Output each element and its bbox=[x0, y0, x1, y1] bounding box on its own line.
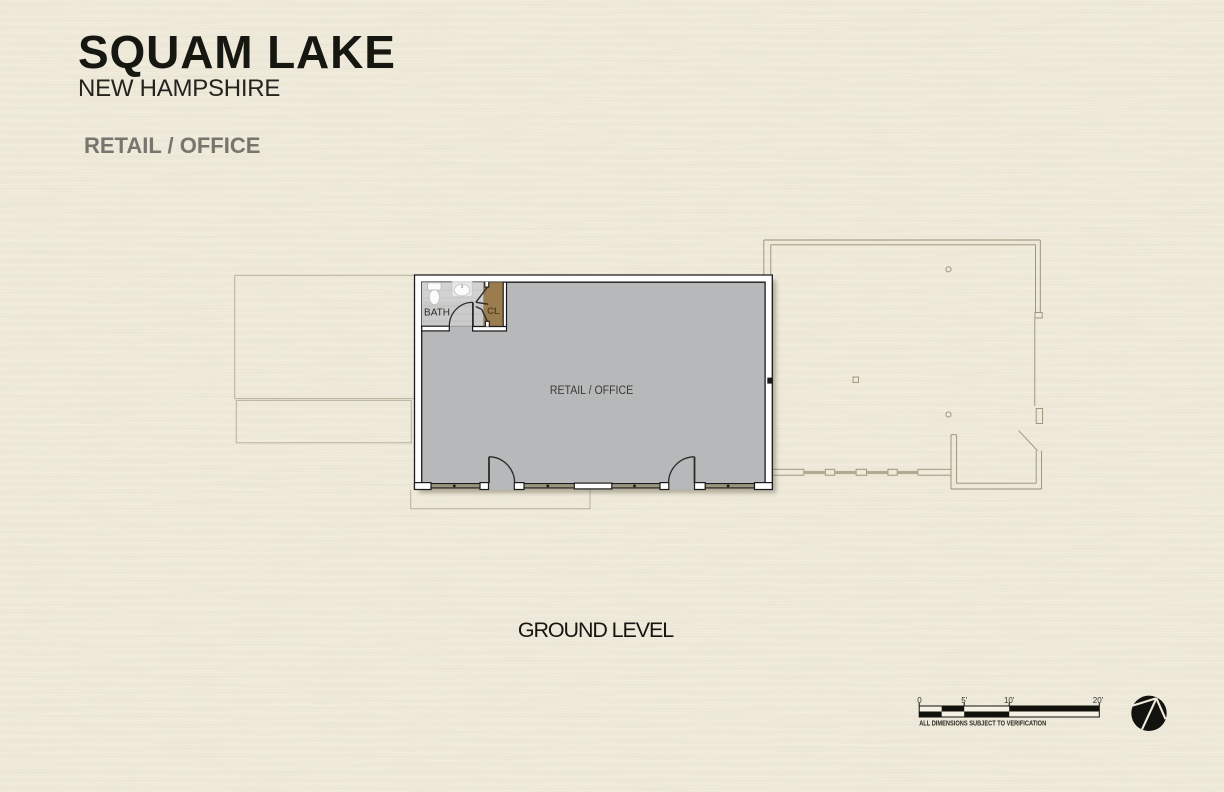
svg-text:10': 10' bbox=[1004, 696, 1015, 705]
svg-text:CL: CL bbox=[487, 306, 500, 317]
svg-text:5': 5' bbox=[961, 696, 967, 705]
svg-text:RETAIL / OFFICE: RETAIL / OFFICE bbox=[550, 384, 634, 397]
svg-text:20': 20' bbox=[1093, 696, 1104, 705]
svg-text:ALL DIMENSIONS SUBJECT TO VERI: ALL DIMENSIONS SUBJECT TO VERIFICATION bbox=[919, 720, 1046, 728]
svg-text:0: 0 bbox=[917, 696, 922, 705]
svg-text:BATH: BATH bbox=[424, 308, 450, 319]
